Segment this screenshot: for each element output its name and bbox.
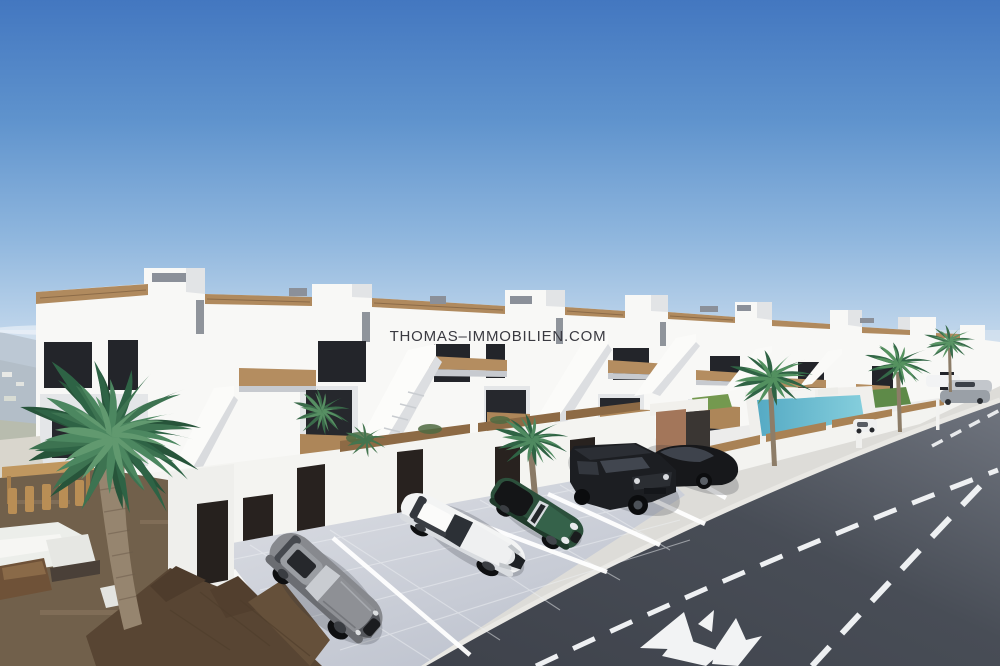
svg-text:THOMAS–IMMOBILIEN.COM: THOMAS–IMMOBILIEN.COM	[390, 328, 607, 345]
